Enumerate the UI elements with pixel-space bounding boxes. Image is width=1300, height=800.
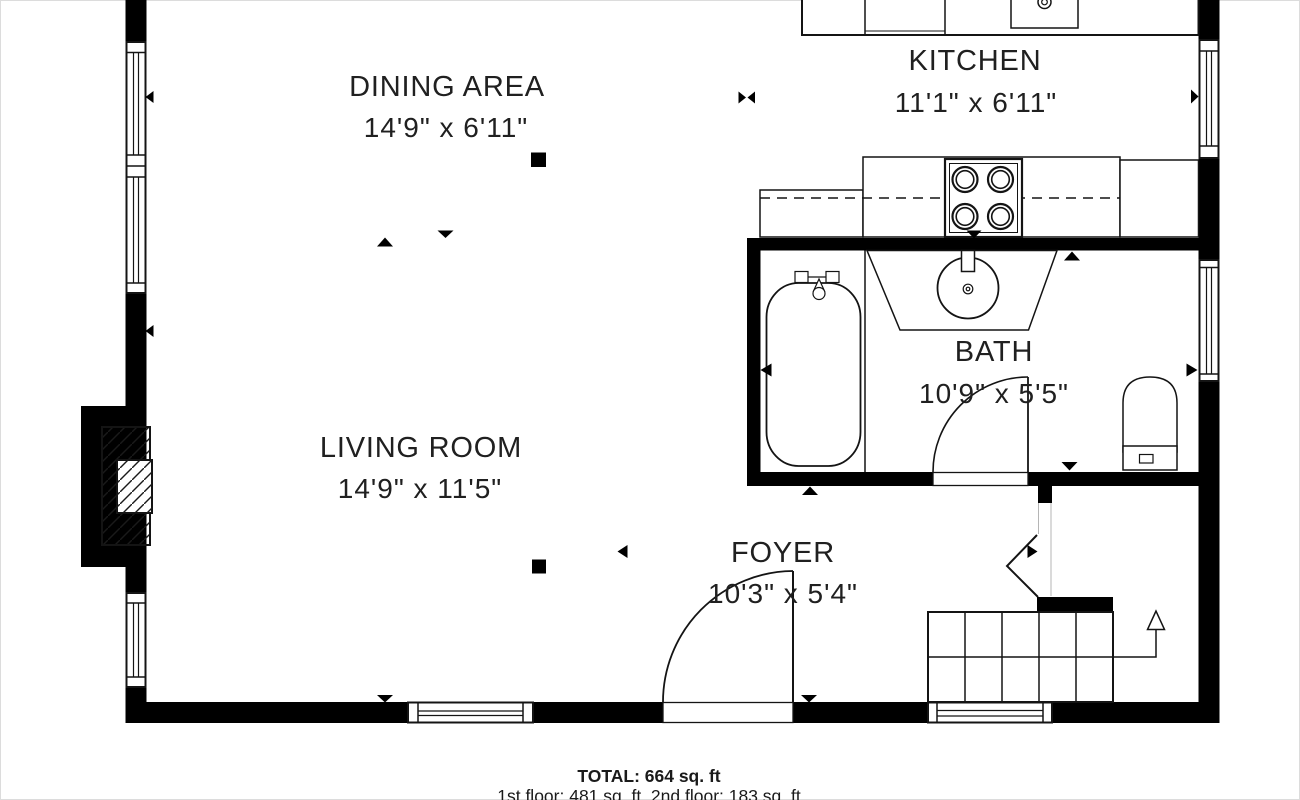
kitchen-counter-left: [760, 190, 863, 237]
sink-faucet: [962, 251, 975, 272]
window-bottom-living: [408, 703, 533, 723]
window-right-kitchen: [1200, 40, 1219, 158]
room-label-living: LIVING ROOM: [320, 432, 522, 464]
fireplace-firebox-hatch: [117, 460, 152, 513]
sink-drain-inner: [966, 287, 970, 291]
kitchen-faucet-inner: [1042, 0, 1048, 5]
room-dims-foyer: 10'3" x 5'4": [708, 578, 858, 609]
bath-top-wall: [747, 238, 1199, 251]
room-label-dining: DINING AREA: [349, 71, 545, 103]
toilet-flush-button: [1140, 455, 1154, 464]
room-dims-kitchen: 11'1" x 6'11": [895, 87, 1057, 118]
stove: [945, 159, 1022, 237]
window-bottom-stairs: [928, 703, 1052, 723]
window-left-dining: [127, 42, 146, 293]
kitchen-top-counter: [802, 0, 1199, 35]
window-right-bath: [1200, 260, 1219, 381]
marker-square-icon: [532, 560, 546, 574]
floor-plan-page: { "rooms": [ {"name": "DINING AREA", "di…: [0, 0, 1300, 800]
stair-top-wall-bar: [1037, 597, 1113, 612]
room-label-kitchen: KITCHEN: [909, 45, 1042, 77]
bath-vanity-sink: [867, 251, 1057, 331]
fireplace: [102, 427, 152, 545]
tub-fixture-right: [826, 272, 839, 283]
wall-stub: [1038, 486, 1052, 503]
room-dims-living: 14'9" x 11'5": [338, 473, 502, 504]
tub-fixture-left: [795, 272, 808, 283]
entry-door-threshold: [663, 703, 793, 723]
kitchen-counter-right: [1120, 160, 1199, 237]
marker-square-icon: [531, 153, 546, 168]
bathtub: [767, 272, 861, 467]
bath-door-threshold: [933, 473, 1028, 486]
bath-left-wall: [747, 238, 761, 486]
floor-areas-text: 1st floor: 481 sq. ft, 2nd floor: 183 sq…: [497, 786, 801, 800]
room-dims-dining: 14'9" x 6'11": [364, 112, 528, 143]
toilet: [1123, 377, 1177, 470]
floor-plan-canvas: DINING AREA 14'9" x 6'11" KITCHEN 11'1" …: [0, 0, 1300, 800]
toilet-bowl: [1123, 377, 1177, 452]
room-label-foyer: FOYER: [731, 537, 835, 569]
room-dims-bath: 10'9" x 5'5": [919, 378, 1069, 409]
room-label-bath: BATH: [955, 336, 1033, 368]
total-area-text: TOTAL: 664 sq. ft: [577, 766, 720, 786]
window-left-living: [127, 593, 146, 687]
